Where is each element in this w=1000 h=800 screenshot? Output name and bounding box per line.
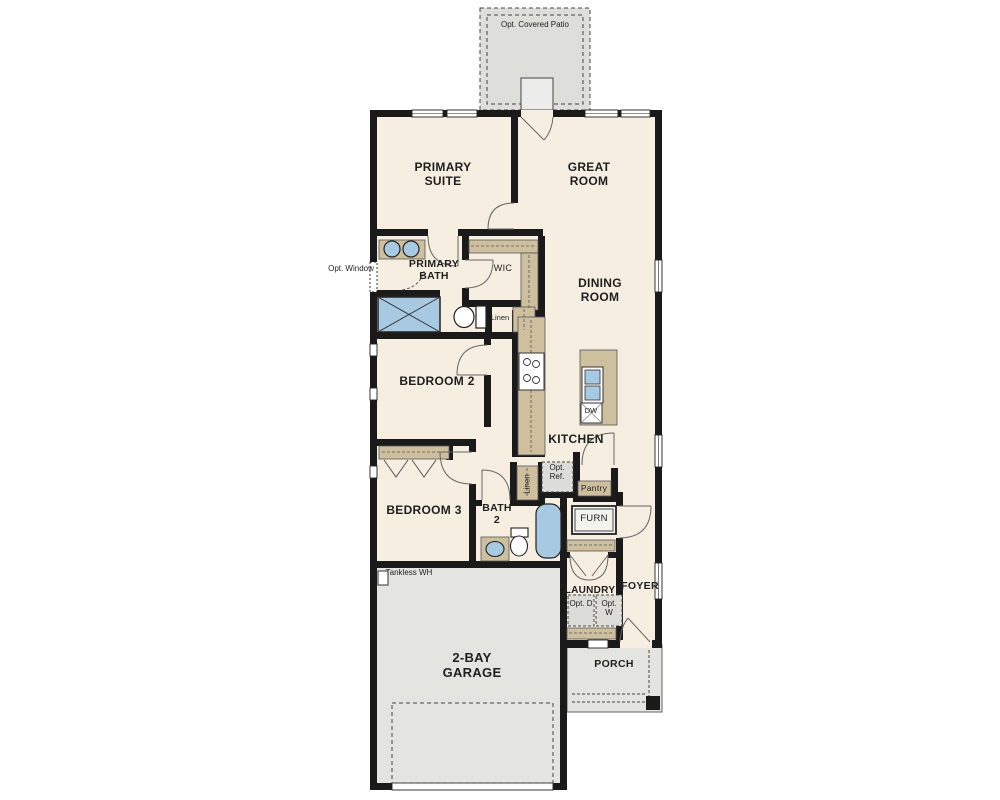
wall-segment bbox=[510, 462, 517, 506]
sink bbox=[486, 542, 504, 557]
wall-segment bbox=[377, 229, 428, 236]
linen-label: Linen bbox=[491, 314, 509, 323]
island-sink bbox=[585, 370, 600, 384]
laundry-shelf bbox=[567, 628, 616, 639]
bath-2-label: BATH 2 bbox=[479, 502, 515, 527]
kitchen-label: KITCHEN bbox=[548, 432, 603, 446]
wall-segment bbox=[377, 439, 476, 446]
linen-2-label: Linen bbox=[522, 474, 531, 494]
primary-suite-label: PRIMARY SUITE bbox=[403, 160, 483, 188]
wic-shelf bbox=[521, 253, 538, 310]
foyer-label: FOYER bbox=[621, 580, 659, 592]
toilet-tank bbox=[476, 306, 486, 328]
wic-label: WIC bbox=[494, 263, 512, 274]
island-sink bbox=[585, 386, 600, 400]
wall-segment bbox=[542, 492, 573, 498]
laundry-label: LAUNDRY bbox=[565, 585, 616, 597]
dishwasher-label: DW bbox=[585, 407, 598, 416]
window bbox=[588, 640, 608, 648]
window bbox=[370, 344, 377, 356]
wall-segment bbox=[484, 339, 491, 345]
bedroom-3-label: BEDROOM 3 bbox=[386, 503, 461, 517]
opt-dryer-label: Opt. D bbox=[569, 599, 593, 608]
porch-post bbox=[646, 696, 660, 710]
wall-segment bbox=[484, 375, 491, 427]
wall-segment bbox=[511, 117, 518, 203]
garage-door bbox=[392, 783, 553, 790]
toilet bbox=[511, 536, 528, 556]
toilet bbox=[454, 307, 474, 328]
wall-segment bbox=[608, 552, 623, 558]
porch-label: PORCH bbox=[594, 658, 633, 670]
patio-label: Opt. Covered Patio bbox=[500, 20, 570, 29]
primary-bath-label: PRIMARY BATH bbox=[394, 258, 474, 283]
coat-shelf bbox=[567, 540, 615, 551]
wall-segment bbox=[377, 290, 440, 297]
window bbox=[370, 466, 377, 478]
patio-step bbox=[521, 78, 553, 110]
wall-segment bbox=[462, 236, 469, 260]
pantry-label: Pantry bbox=[581, 483, 607, 493]
floor-plan: Opt. Covered Patio PRIMARY SUITE GREAT R… bbox=[0, 0, 1000, 800]
wall-segment bbox=[370, 110, 377, 568]
wall-segment bbox=[370, 561, 567, 568]
wall-segment bbox=[469, 484, 476, 561]
bedroom-2-label: BEDROOM 2 bbox=[399, 374, 474, 388]
closet-shelf bbox=[379, 446, 449, 459]
wic-shelf bbox=[469, 240, 538, 253]
wall-segment bbox=[538, 236, 545, 310]
tankless-wh-label: Tankless WH bbox=[382, 568, 436, 577]
range bbox=[519, 353, 544, 390]
door-opening bbox=[521, 110, 553, 117]
wall-segment bbox=[573, 496, 618, 502]
wall-segment bbox=[510, 500, 545, 506]
garage-label: 2-BAY GARAGE bbox=[427, 650, 517, 681]
door-opening bbox=[620, 640, 652, 648]
wall-segment bbox=[370, 568, 377, 790]
opt-ref-label: Opt. Ref. bbox=[543, 463, 571, 482]
window bbox=[370, 388, 377, 400]
wall-segment bbox=[616, 492, 623, 506]
wall-segment bbox=[560, 552, 570, 558]
opt-washer-label: Opt. W bbox=[597, 599, 621, 618]
wall-segment bbox=[458, 229, 543, 236]
sink bbox=[403, 241, 419, 257]
bathtub bbox=[536, 504, 561, 558]
great-room-label: GREAT ROOM bbox=[559, 160, 619, 188]
wall-segment bbox=[469, 446, 476, 452]
opt-window-label: Opt. Window bbox=[328, 264, 374, 273]
dining-room-label: DINING ROOM bbox=[570, 276, 630, 304]
furnace-label: FURN bbox=[580, 513, 608, 524]
sink bbox=[384, 241, 400, 257]
